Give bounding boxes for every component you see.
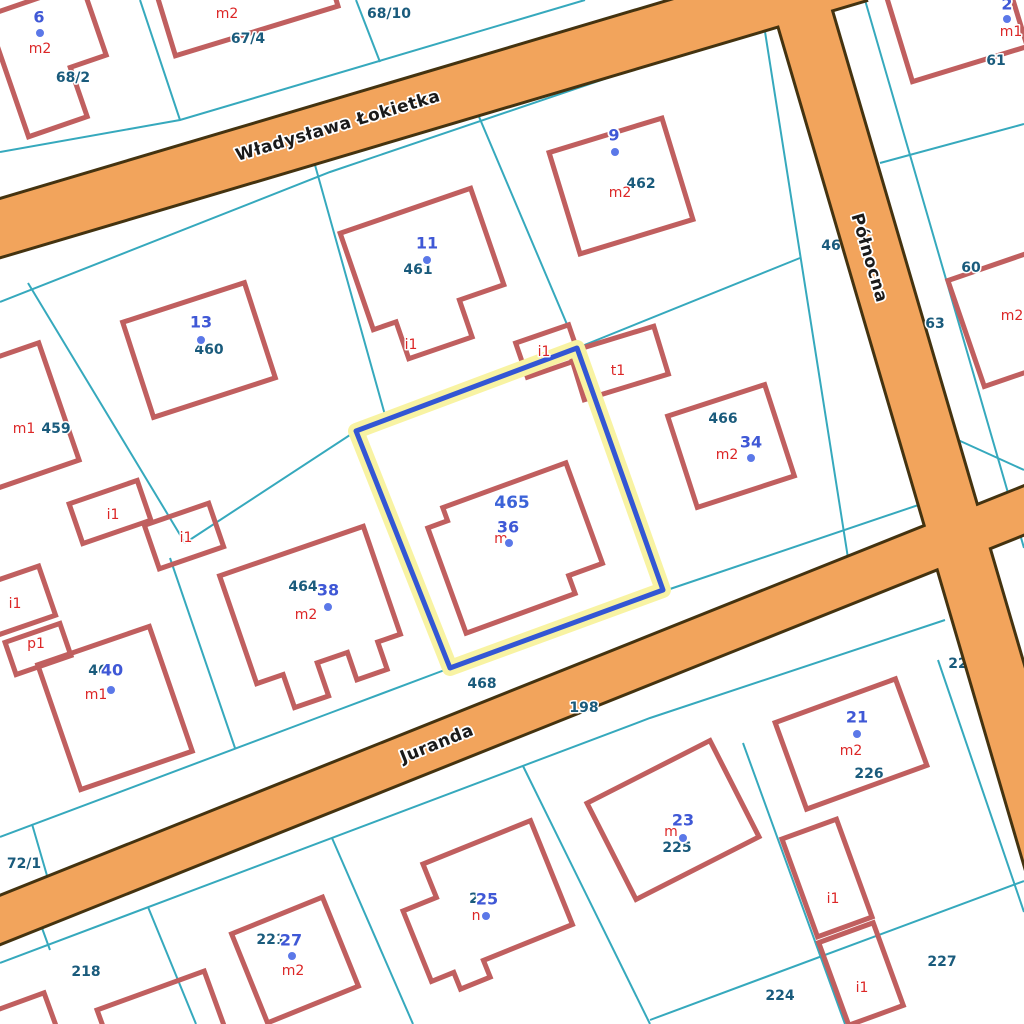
- building-type-label: p1: [27, 636, 45, 652]
- building-point-icon: [287, 951, 297, 961]
- building-type-label: i1: [9, 596, 22, 612]
- building-type-label: m2: [609, 185, 632, 201]
- building-type-label: i1: [405, 337, 418, 353]
- building-type-label: t1: [611, 363, 625, 379]
- building-type-label: m2: [282, 963, 305, 979]
- parcel-number: 226: [854, 766, 883, 782]
- selected-parcel-number: 465: [494, 493, 530, 513]
- building-i1-f[interactable]: [819, 923, 904, 1024]
- building-type-label: m2: [295, 607, 318, 623]
- building-number: 25: [476, 890, 498, 909]
- building-67-4[interactable]: [148, 0, 338, 56]
- building-point-icon: [422, 255, 432, 265]
- building-type-label: m2: [716, 447, 739, 463]
- parcel-number: 459: [41, 421, 70, 437]
- building-459[interactable]: [0, 343, 79, 497]
- parcel-number: 60: [961, 260, 981, 276]
- building-number: 23: [672, 811, 694, 830]
- building-partial-a[interactable]: [97, 971, 233, 1024]
- building-type-label: i1: [827, 891, 840, 907]
- parcel-number: 218: [71, 964, 100, 980]
- building-type-label: i1: [180, 530, 193, 546]
- building-type-label: m1: [13, 421, 36, 437]
- building-point-icon: [610, 147, 620, 157]
- building-number: 40: [101, 661, 123, 680]
- parcel-number: 67/4: [231, 31, 266, 47]
- building-partial-b[interactable]: [0, 993, 61, 1024]
- building-point-icon: [852, 729, 862, 739]
- building-number: 6: [33, 8, 44, 27]
- building-point-icon: [504, 538, 514, 548]
- map-viewport[interactable]: 4622: [0, 0, 1024, 1024]
- building-type-label: i1: [856, 980, 869, 996]
- building-number: 11: [416, 234, 438, 253]
- building-type-label: m2: [840, 743, 863, 759]
- building-type-label: i1: [107, 507, 120, 523]
- building-number: 27: [280, 931, 302, 950]
- building-25[interactable]: [390, 821, 580, 998]
- building-number: 2: [1001, 0, 1012, 14]
- parcel-number: 68/2: [56, 70, 90, 86]
- building-type-label: m2: [29, 41, 52, 57]
- building-type-label: m2: [1001, 308, 1024, 324]
- building-point-icon: [196, 335, 206, 345]
- building-point-icon: [481, 911, 491, 921]
- parcel-number: 225: [662, 840, 691, 856]
- building-number: 9: [608, 126, 619, 145]
- building-type-label: n: [472, 908, 481, 924]
- building-point-icon: [678, 833, 688, 843]
- building-type-label: m2: [216, 6, 239, 22]
- parcel-number: 198: [569, 700, 598, 716]
- building-type-label: m1: [85, 687, 108, 703]
- building-point-icon: [1002, 14, 1012, 24]
- parcel-number: 72/1: [7, 856, 41, 872]
- building-number: 13: [190, 313, 212, 332]
- building-40[interactable]: [38, 626, 193, 789]
- parcel-number: 227: [927, 954, 956, 970]
- parcel-number: 46: [821, 238, 840, 254]
- parcel-number: 464: [288, 579, 317, 595]
- building-34[interactable]: [668, 385, 795, 508]
- building-i1-e[interactable]: [782, 819, 872, 937]
- parcel-number: 468: [467, 676, 496, 692]
- parcel-number: 466: [708, 411, 737, 427]
- building-point-icon: [106, 685, 116, 695]
- building-6[interactable]: [0, 0, 123, 137]
- building-number: 36: [497, 518, 519, 537]
- selected-parcel-label: 465: [494, 493, 530, 513]
- building-type-label: m1: [1000, 24, 1023, 40]
- parcel-number: 63: [925, 316, 944, 332]
- building-36[interactable]: [423, 463, 609, 633]
- building-point-icon: [746, 453, 756, 463]
- parcel-number: 68/10: [367, 6, 411, 22]
- building-number: 21: [846, 708, 868, 727]
- building-point-icon: [35, 28, 45, 38]
- building-point-icon: [323, 602, 333, 612]
- parcel-number: 224: [765, 988, 794, 1004]
- building-number: 38: [317, 581, 339, 600]
- parcel-number: 61: [986, 53, 1005, 69]
- building-type-label: i1: [538, 344, 551, 360]
- cadastral-map[interactable]: 4622: [0, 0, 1024, 1024]
- building-number: 34: [740, 433, 762, 452]
